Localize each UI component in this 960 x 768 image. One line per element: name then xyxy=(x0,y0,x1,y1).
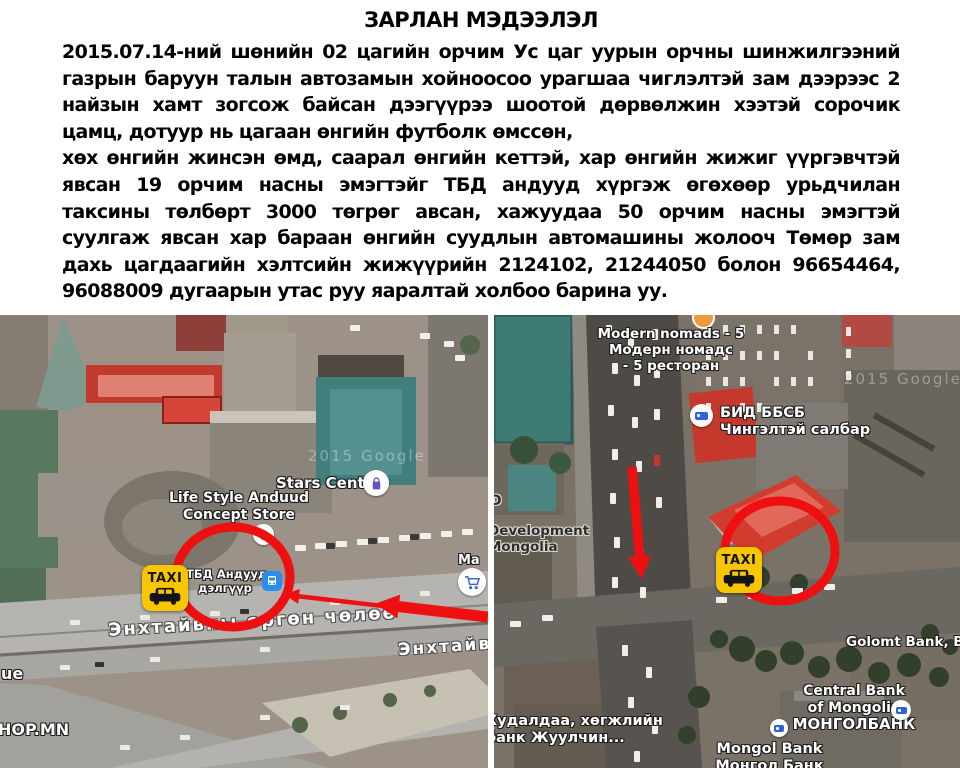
announcement-paragraph-2: хөх өнгийн жинсэн өмд, саарал өнгийн кет… xyxy=(62,145,900,305)
google-watermark: 2015 Google xyxy=(308,447,426,465)
map-left-anduud-store: 2015 Google Stars Center Life Style Andu… xyxy=(0,315,488,768)
map-label-market-fragment: Ma xyxy=(458,553,480,568)
page-title: ЗАРЛАН МЭДЭЭЛЭЛ xyxy=(62,8,900,32)
map-label-bid-bbsb: БИД ББСБ Чингэлтэй салбар xyxy=(720,405,870,439)
map-label-dev-fragment: D xyxy=(494,493,502,510)
map-label-development-mongolia: Development Mongolia xyxy=(494,524,589,556)
map-label-tbd-anduud-store: ТБД Андууд дэлгүүр xyxy=(186,568,264,595)
map-screenshots-row: 2015 Google Stars Center Life Style Andu… xyxy=(0,315,960,768)
bus-stop-icon xyxy=(262,571,282,591)
announcement-text-block: ЗАРЛАН МЭДЭЭЛЭЛ 2015.07.14-ний шөнийн 02… xyxy=(0,0,960,315)
map-label-lifestyle-store: Life Style Anduud Concept Store xyxy=(158,490,320,523)
taxi-car-glyph xyxy=(148,586,182,605)
map-label-avenue-fragment: ue xyxy=(1,665,23,684)
google-watermark: 2015 Google xyxy=(844,370,960,388)
map-label-shopmn-fragment: HOP.MN xyxy=(0,721,69,740)
taxi-car-glyph xyxy=(722,568,756,587)
shopping-bag-icon xyxy=(363,470,389,496)
map-label-golomt-bank: Golomt Bank, Branc xyxy=(846,635,960,651)
map-label-trade-development-bank: Худалдаа, хөгжлийн банк Жуулчин... xyxy=(494,713,663,747)
map-right-intersection: 2015 Google Modern nomads - 5 Модерн ном… xyxy=(494,315,960,768)
shopping-cart-icon xyxy=(458,568,486,596)
taxi-stand-icon: TAXI xyxy=(716,547,762,593)
announcement-flyer: { "colors": { "annotation_red": "#ee1010… xyxy=(0,0,960,768)
announcement-paragraph-1: 2015.07.14-ний шөнийн 02 цагийн орчим Ус… xyxy=(62,39,900,145)
currency-badge-icon xyxy=(891,700,911,720)
currency-badge-icon xyxy=(770,719,788,737)
map-label-mongol-bank: Mongol Bank Монгол Банк xyxy=(707,741,832,768)
map-label-modern-nomads: Modern nomads - 5 Модерн номадс - 5 рест… xyxy=(586,327,756,375)
currency-badge-icon xyxy=(690,404,713,427)
shopping-bag-icon xyxy=(253,524,274,545)
satellite-imagery-left xyxy=(0,315,488,768)
taxi-stand-icon: TAXI xyxy=(142,565,188,611)
